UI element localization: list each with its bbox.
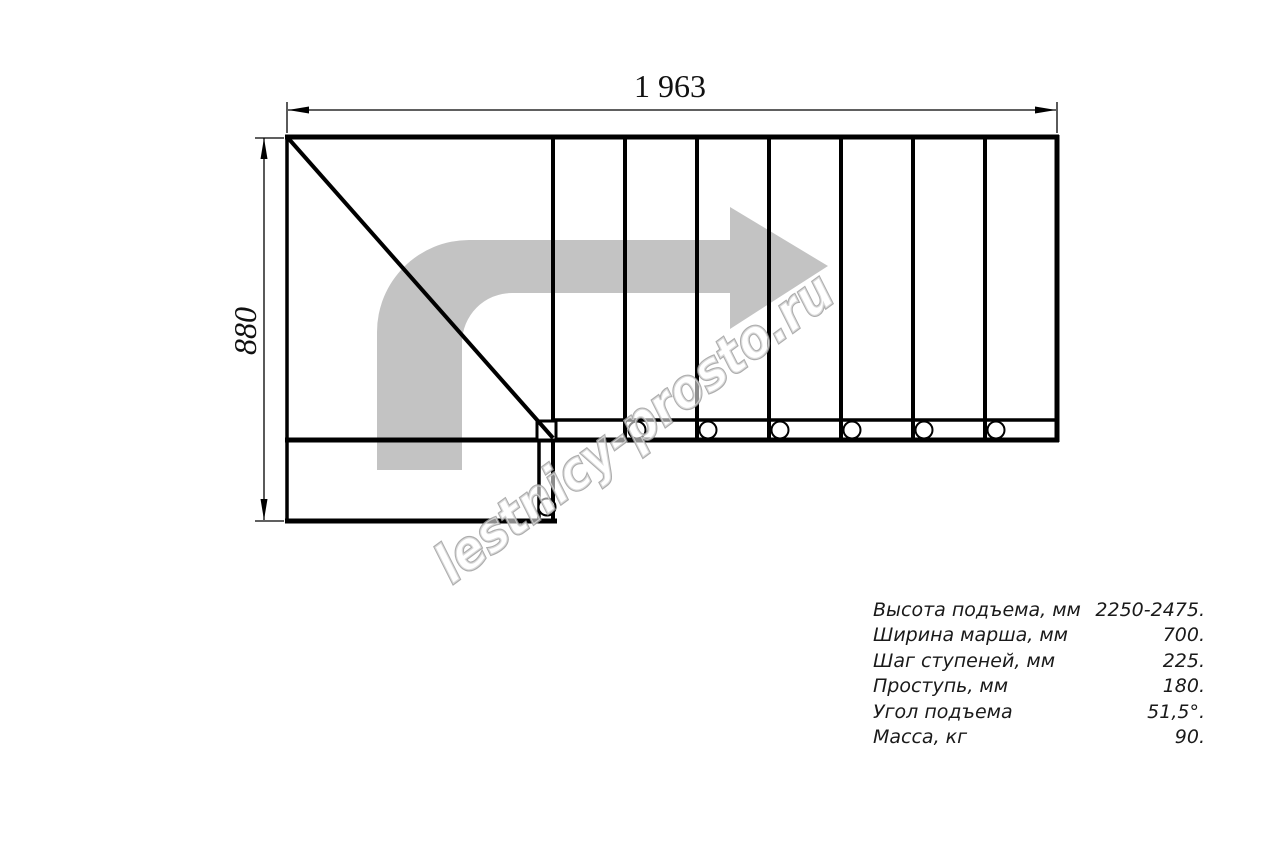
- dim-arrow-down: [261, 499, 268, 520]
- spec-label: Проступь, мм: [873, 674, 1008, 699]
- dimension-lines: [255, 102, 1057, 521]
- dim-arrow-up: [261, 138, 268, 159]
- baluster-circle: [772, 422, 789, 439]
- dim-arrow-left: [288, 107, 309, 114]
- spec-label: Ширина марша, мм: [873, 623, 1068, 648]
- baluster-circle: [844, 422, 861, 439]
- spec-table: Высота подъема, мм 2250-2475. Ширина мар…: [873, 598, 1205, 750]
- spec-label: Угол подъема: [873, 700, 1013, 725]
- spec-label: Масса, кг: [873, 725, 967, 750]
- spec-row: Проступь, мм 180.: [873, 674, 1205, 699]
- spec-row: Ширина марша, мм 700.: [873, 623, 1205, 648]
- spec-label: Высота подъема, мм: [873, 598, 1081, 623]
- spec-value: 90.: [1175, 725, 1205, 750]
- baluster-circle: [700, 422, 717, 439]
- spec-row: Высота подъема, мм 2250-2475.: [873, 598, 1205, 623]
- spec-value: 51,5°.: [1147, 700, 1205, 725]
- drawing-canvas: 1 963 880 lestnicy-prosto.ru Высота подъ…: [0, 0, 1280, 853]
- spec-value: 700.: [1163, 623, 1205, 648]
- spec-value: 180.: [1163, 674, 1205, 699]
- baluster-circle: [916, 422, 933, 439]
- baluster-circle: [988, 422, 1005, 439]
- spec-value: 225.: [1163, 649, 1205, 674]
- spec-row: Шаг ступеней, мм 225.: [873, 649, 1205, 674]
- spec-value: 2250-2475.: [1095, 598, 1205, 623]
- dim-arrow-right: [1035, 107, 1056, 114]
- spec-row: Масса, кг 90.: [873, 725, 1205, 750]
- spec-label: Шаг ступеней, мм: [873, 649, 1055, 674]
- dim-left-label: 880: [227, 307, 263, 355]
- dim-top-label: 1 963: [634, 68, 706, 104]
- spec-row: Угол подъема 51,5°.: [873, 700, 1205, 725]
